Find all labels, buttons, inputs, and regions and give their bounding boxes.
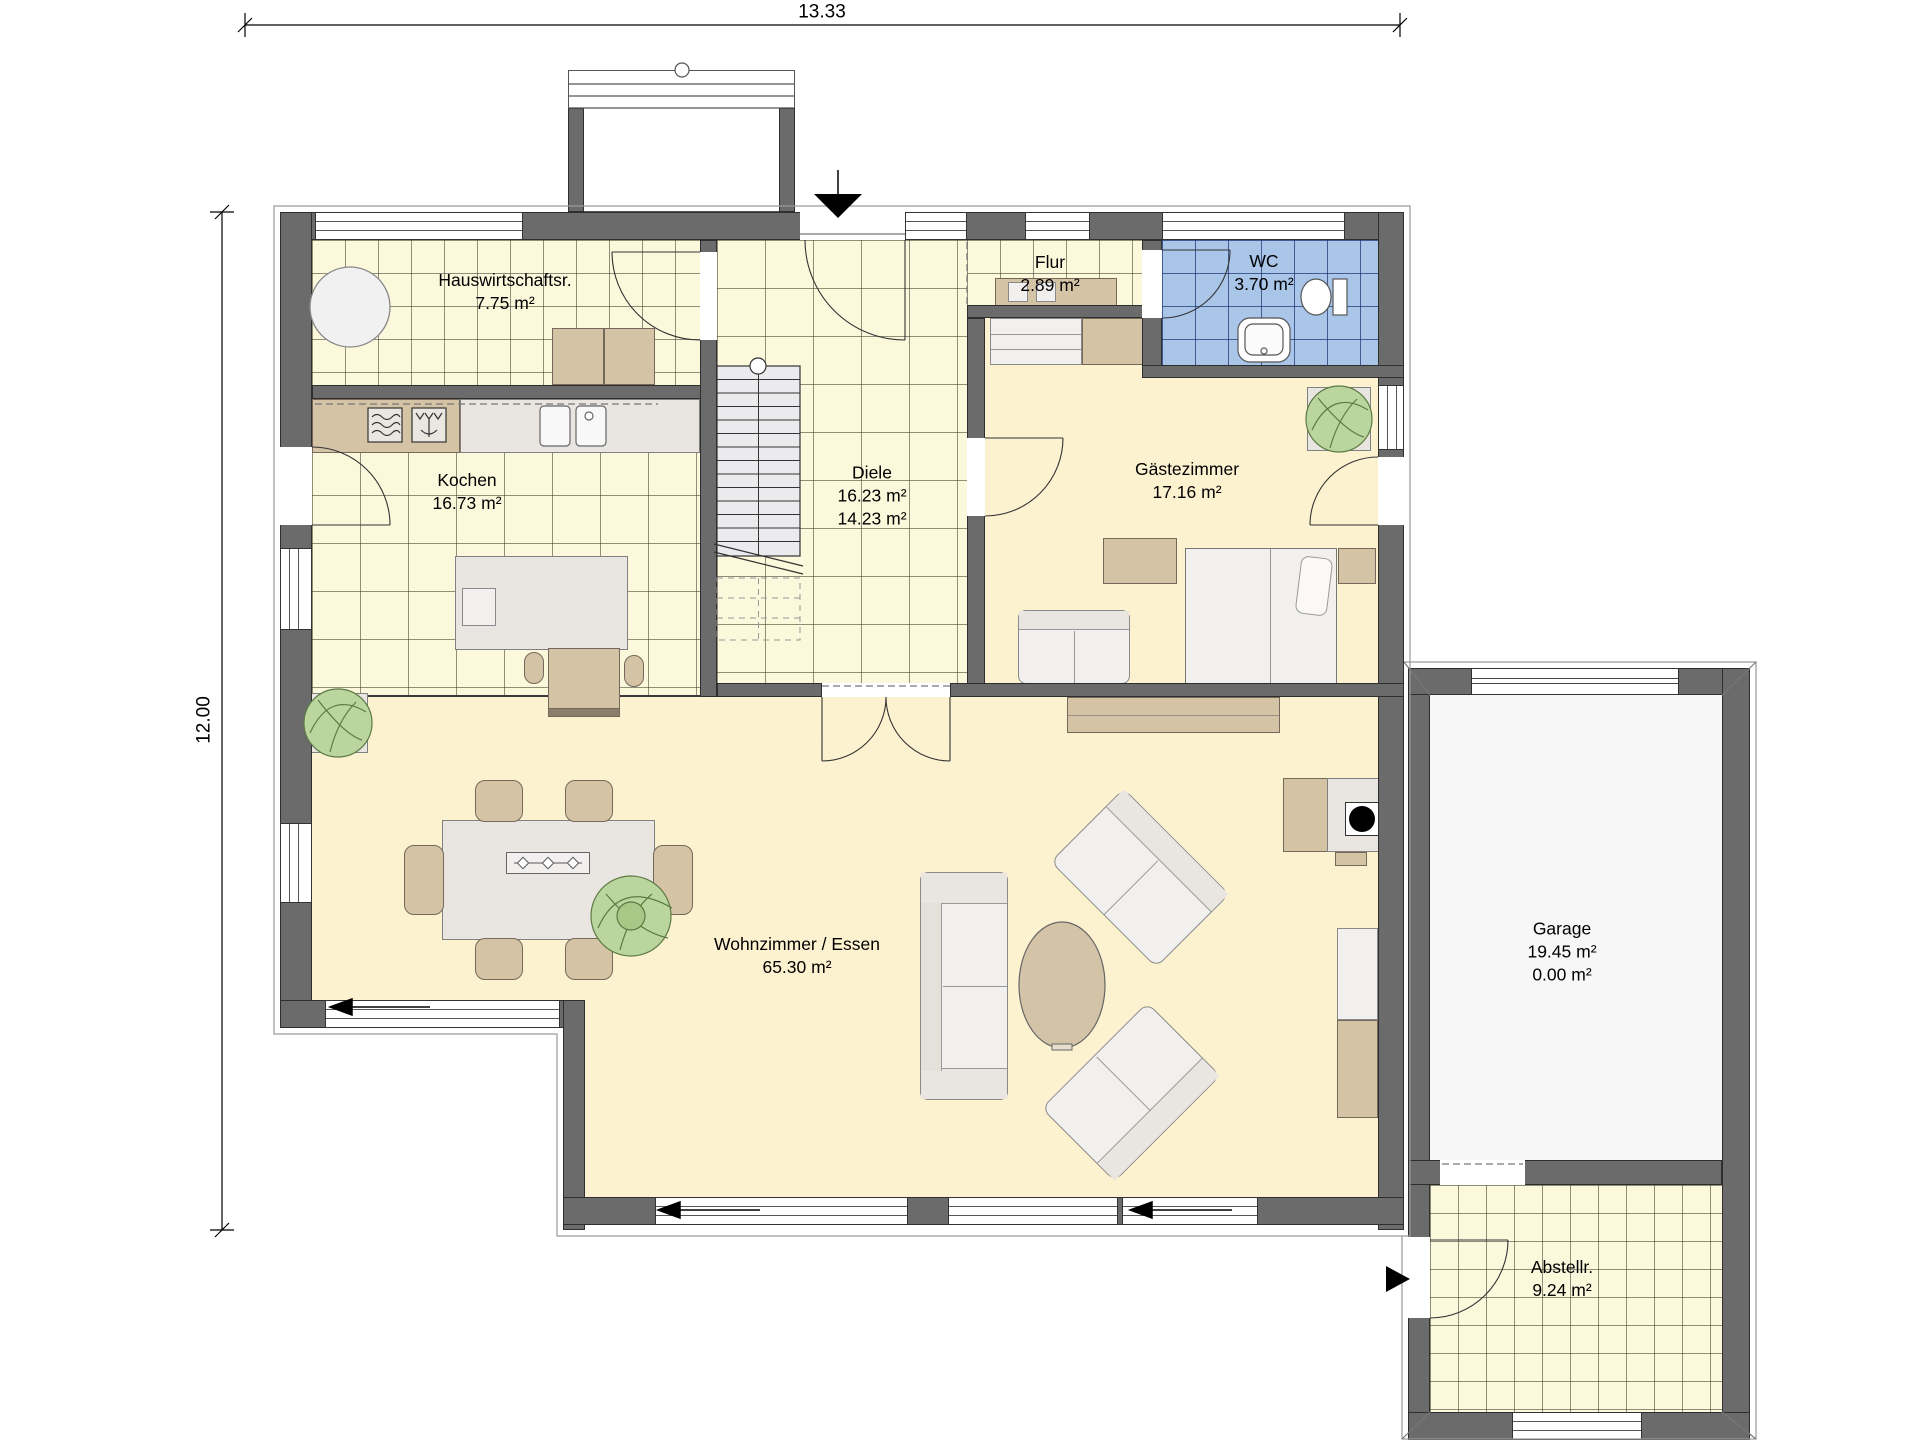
dining-chair <box>565 780 613 822</box>
dining-chair <box>653 845 693 915</box>
dining-chair <box>565 938 613 980</box>
utility-cabinet <box>552 328 604 385</box>
kitchen-island-sink <box>462 588 496 626</box>
room-name: Diele <box>837 462 906 485</box>
room-name: Wohnzimmer / Essen <box>714 933 880 956</box>
entrance-porch <box>568 70 795 212</box>
stool <box>524 652 544 684</box>
room-area: 17.16 m² <box>1135 481 1239 504</box>
wall-wc-south <box>1142 365 1404 378</box>
storage-door-opening <box>1408 1237 1430 1318</box>
wall-exterior-step <box>563 1000 585 1230</box>
room-label-diele: Diele 16.23 m² 14.23 m² <box>837 462 906 531</box>
room-area: 7.75 m² <box>438 292 571 315</box>
room-area: 9.24 m² <box>1531 1279 1593 1302</box>
garage-storage-opening <box>1440 1160 1525 1185</box>
kitchen-counter-light <box>460 399 700 453</box>
wall-guest-south <box>950 683 1404 697</box>
room-label-abstellraum: Abstellr. 9.24 m² <box>1531 1256 1593 1302</box>
kitchen-table <box>548 648 620 716</box>
stove-bench <box>1335 852 1367 866</box>
dining-chair <box>404 845 444 915</box>
room-area-2: 0.00 m² <box>1527 964 1596 987</box>
stool <box>624 655 644 687</box>
window-living-west <box>280 823 312 903</box>
window-entry-side <box>905 212 967 240</box>
guest-loveseat <box>1018 610 1130 684</box>
porch-wall-left <box>568 108 584 212</box>
room-area: 19.45 m² <box>1527 941 1596 964</box>
window-kitchen-west <box>280 548 312 630</box>
window-wc <box>1162 212 1345 240</box>
room-label-hauswirtschaftsraum: Hauswirtschaftsr. 7.75 m² <box>438 269 571 315</box>
porch-wall-right <box>779 108 795 212</box>
room-name: Abstellr. <box>1531 1256 1593 1279</box>
room-name: Garage <box>1527 918 1596 941</box>
room-area: 65.30 m² <box>714 956 880 979</box>
wall-utility-south <box>312 385 717 399</box>
shelf-unit-bottom <box>1337 1020 1378 1118</box>
sideboard <box>1067 697 1280 733</box>
floor-plan-canvas: Hauswirtschaftsr. 7.75 m² Flur 2.89 m² W… <box>0 0 1920 1440</box>
sofa <box>920 872 1008 1100</box>
room-name: Flur <box>1020 251 1079 274</box>
guest-table <box>1103 538 1177 584</box>
utility-door-opening <box>700 252 717 340</box>
room-name: Hauswirtschaftsr. <box>438 269 571 292</box>
room-area-2: 14.23 m² <box>837 508 906 531</box>
storage-door-arrow-icon <box>1386 1266 1410 1292</box>
room-label-wc: WC 3.70 m² <box>1234 250 1293 296</box>
desk <box>1283 778 1330 852</box>
pillow <box>1295 555 1334 616</box>
nightstand <box>1338 548 1376 584</box>
dining-table <box>442 820 655 940</box>
plant-pot <box>1307 387 1371 451</box>
dimension-height-label: 12.00 <box>193 696 216 744</box>
wood-stove <box>1345 802 1379 836</box>
wall-flur-south <box>967 305 1162 318</box>
wall-hall-south <box>717 683 822 697</box>
window-utility <box>315 212 523 240</box>
room-label-gaestezimmer: Gästezimmer 17.16 m² <box>1135 458 1239 504</box>
garage-gate <box>1472 668 1678 695</box>
window-living-southwest <box>325 1000 560 1028</box>
guest-bed <box>1185 548 1337 685</box>
dining-chair <box>475 938 523 980</box>
kitchen-counter-tan <box>312 399 460 453</box>
room-name: Kochen <box>432 469 501 492</box>
room-area: 16.23 m² <box>837 485 906 508</box>
guest-dresser <box>990 318 1082 365</box>
kitchen-side-door-opening <box>280 447 312 525</box>
room-label-garage: Garage 19.45 m² 0.00 m² <box>1527 918 1596 987</box>
dining-table-runner <box>506 852 590 874</box>
wc-door-opening <box>1142 250 1162 318</box>
entrance-arrow-icon <box>814 170 862 218</box>
guest-door-opening <box>967 438 985 516</box>
window-living-south-2 <box>948 1197 1118 1225</box>
wall-garage-right <box>1722 668 1750 1440</box>
kitchen-table-edge <box>548 708 620 717</box>
dining-chair <box>475 780 523 822</box>
room-label-wohnzimmer: Wohnzimmer / Essen 65.30 m² <box>714 933 880 979</box>
room-area: 2.89 m² <box>1020 274 1079 297</box>
shelf-unit-top <box>1337 928 1378 1020</box>
window-flur <box>1025 212 1090 240</box>
window-storage-south <box>1512 1412 1642 1440</box>
guest-terrace-door-opening <box>1378 457 1404 525</box>
room-name: WC <box>1234 250 1293 273</box>
double-door-opening <box>822 683 950 697</box>
plant-pot <box>308 693 368 753</box>
room-name: Gästezimmer <box>1135 458 1239 481</box>
window-living-south-1 <box>655 1197 908 1225</box>
front-door-opening <box>800 212 905 240</box>
room-area: 16.73 m² <box>432 492 501 515</box>
wall-garage-top-a <box>1408 668 1472 695</box>
room-label-flur: Flur 2.89 m² <box>1020 251 1079 297</box>
utility-cabinet <box>604 328 655 385</box>
room-area: 3.70 m² <box>1234 273 1293 296</box>
window-living-south-3 <box>1122 1197 1258 1225</box>
room-label-kochen: Kochen 16.73 m² <box>432 469 501 515</box>
wall-garage-left <box>1408 668 1430 1440</box>
window-guest-east <box>1378 385 1404 450</box>
dimension-width-label: 13.33 <box>798 1 846 24</box>
